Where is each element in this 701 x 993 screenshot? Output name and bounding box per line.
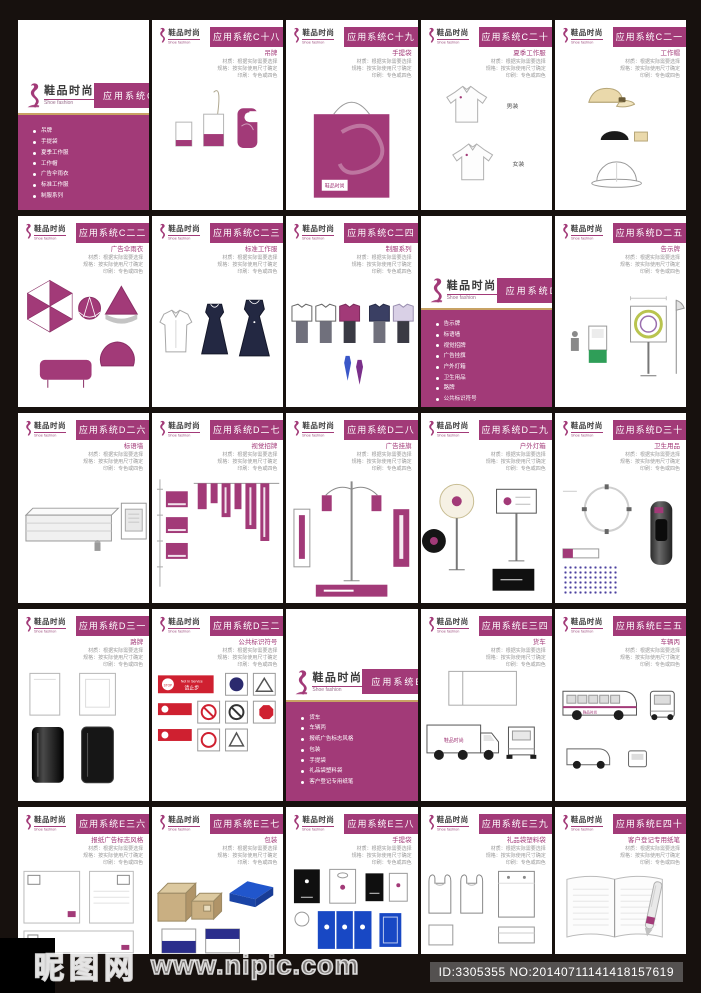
brand-logo: 鞋品时尚Shoe fashion xyxy=(421,420,479,438)
brand-name-cn: 鞋品时尚 xyxy=(437,420,469,433)
logo-woman-icon xyxy=(290,420,301,436)
brand-name-cn: 鞋品时尚 xyxy=(168,27,200,40)
divider-list-item: 客户登记专用纸笔 xyxy=(301,777,417,788)
uniform-figures-illustration xyxy=(286,276,417,406)
page-e40-notebook-pen: 鞋品时尚Shoe fashion 应用系统E四十 客户登记专用纸笔 材质：根据实… xyxy=(555,807,686,954)
brand-name-en: Shoe fashion xyxy=(168,827,195,831)
vi-manual-grid: 鞋品时尚Shoe fashion 应用系统C 吊牌 手提袋 夏季工作服 工作帽 … xyxy=(18,20,686,958)
page-title: 应用系统E四十 xyxy=(613,814,686,834)
brand-name-cn: 鞋品时尚 xyxy=(302,814,334,827)
stop-sign-text: STOP xyxy=(164,683,173,687)
divider-list-item: 手提袋 xyxy=(301,756,417,767)
page-subtitle: 货车 xyxy=(421,638,546,647)
divider-page-c: 鞋品时尚Shoe fashion 应用系统C 吊牌 手提袋 夏季工作服 工作帽 … xyxy=(18,20,149,210)
page-title: 应用系统E三五 xyxy=(613,616,686,636)
divider-list-item: 礼品袋塑料袋 xyxy=(301,766,417,777)
page-subtitle: 标语墙 xyxy=(18,442,143,451)
divider-list-item: 报纸广告标志风格 xyxy=(301,734,417,745)
carrier-bags-illustration xyxy=(286,867,417,954)
divider-item-list: 货车 车辆丙 报纸广告标志风格 包装 手提袋 礼品袋塑料袋 客户登记专用纸笔 xyxy=(286,702,417,801)
brand-name-cn: 鞋品时尚 xyxy=(302,420,334,433)
divider-white-area: 鞋品时尚Shoe fashion 应用系统D xyxy=(421,216,552,308)
brand-name-en: Shoe fashion xyxy=(437,40,464,44)
page-title: 应用系统D二七 xyxy=(210,420,283,440)
corner-black-block xyxy=(0,938,55,993)
logo-woman-icon xyxy=(292,669,310,695)
page-title: 应用系统D三十 xyxy=(613,420,686,440)
divider-list-item: 视觉招牌 xyxy=(436,341,552,352)
page-subtitle: 车辆丙 xyxy=(555,638,680,647)
truck-logo-text: 鞋品时尚 xyxy=(443,737,463,744)
brand-name-en: Shoe fashion xyxy=(571,827,598,831)
brand-name-en: Shoe fashion xyxy=(168,40,195,44)
brand-logo: 鞋品时尚Shoe fashion xyxy=(286,223,344,241)
page-title: 应用系统C二十 xyxy=(479,27,552,47)
brand-name-en: Shoe fashion xyxy=(571,40,598,44)
page-subtitle: 制服系列 xyxy=(286,245,411,254)
logo-woman-icon xyxy=(156,420,167,436)
page-d32-public-pictograms: 鞋品时尚Shoe fashion 应用系统D三二 公共标识符号 材质：根据实际需… xyxy=(152,609,283,801)
page-subtitle: 广告挂旗 xyxy=(286,442,411,451)
brand-logo: 鞋品时尚Shoe fashion xyxy=(286,814,344,832)
page-title: 应用系统C二四 xyxy=(344,223,417,243)
page-subtitle: 公共标识符号 xyxy=(152,638,277,647)
brand-name-en: Shoe fashion xyxy=(302,433,329,437)
page-c18-hangtags: 鞋品时尚Shoe fashion 应用系统C十八 吊牌 材质：根据实际需要选择规… xyxy=(152,20,283,210)
road-sign-pylons-illustration xyxy=(18,669,149,799)
brand-name-en: Shoe fashion xyxy=(44,100,94,106)
page-subtitle: 手提袋 xyxy=(286,836,411,845)
page-subtitle: 吊牌 xyxy=(152,49,277,58)
divider-title: 应用系统C xyxy=(94,83,149,108)
logo-woman-icon xyxy=(290,223,301,239)
page-title: 应用系统D二九 xyxy=(479,420,552,440)
brand-name-en: Shoe fashion xyxy=(34,629,61,633)
hanging-banners-illustration xyxy=(152,473,283,603)
not-in-service-text: Not In Service xyxy=(181,679,203,683)
page-e34-truck: 鞋品时尚Shoe fashion 应用系统E三四 货车 材质：根据实际需要选择规… xyxy=(421,609,552,801)
brand-logo: 鞋品时尚Shoe fashion xyxy=(152,814,210,832)
divider-list-item: 制服系列 xyxy=(33,191,149,202)
brand-name-cn: 鞋品时尚 xyxy=(34,616,66,629)
divider-list-item: 告示牌 xyxy=(436,319,552,330)
minibus-illustration: 鞋品时尚 xyxy=(555,669,686,799)
brand-name-cn: 鞋品时尚 xyxy=(437,27,469,40)
page-title: 应用系统E三九 xyxy=(479,814,552,834)
page-title: 应用系统E三六 xyxy=(76,814,149,834)
dot-pattern-swatch xyxy=(563,565,617,595)
page-c19-bag: 鞋品时尚Shoe fashion 应用系统C十九 手提袋 材质：根据实际需要选择… xyxy=(286,20,417,210)
divider-list-item: 标语墙 xyxy=(436,330,552,341)
page-subtitle: 视觉招牌 xyxy=(152,442,277,451)
logo-woman-icon xyxy=(559,616,570,632)
boxes-illustration xyxy=(152,867,283,954)
brand-logo: 鞋品时尚Shoe fashion xyxy=(555,420,613,438)
page-subtitle: 礼品袋塑料袋 xyxy=(421,836,546,845)
brand-name-en: Shoe fashion xyxy=(168,433,195,437)
brand-logo: 鞋品时尚Shoe fashion xyxy=(555,814,613,832)
page-title: 应用系统D二五 xyxy=(613,223,686,243)
brand-logo: 鞋品时尚Shoe fashion xyxy=(421,27,479,45)
page-title: 应用系统D二六 xyxy=(76,420,149,440)
brand-logo: 鞋品时尚Shoe fashion xyxy=(555,27,613,45)
divider-list-item: 广告挂旗 xyxy=(436,351,552,362)
page-subtitle: 路牌 xyxy=(18,638,143,647)
divider-list-item: 车辆丙 xyxy=(301,723,417,734)
page-e37-packaging: 鞋品时尚Shoe fashion 应用系统E三七 包装 材质：根据实际需要选择规… xyxy=(152,807,283,954)
logo-woman-icon xyxy=(425,814,436,830)
brand-name-cn: 鞋品时尚 xyxy=(312,669,362,687)
page-title: 应用系统E三七 xyxy=(210,814,283,834)
divider-list-item: 工作帽 xyxy=(33,159,149,170)
hangtags-illustration xyxy=(152,80,283,210)
divider-list-item: 路牌 xyxy=(436,383,552,394)
logo-woman-icon xyxy=(22,616,33,632)
page-subtitle: 报纸广告标志风格 xyxy=(18,836,143,845)
page-title: 应用系统E三四 xyxy=(479,616,552,636)
brand-logo: 鞋品时尚Shoe fashion xyxy=(152,223,210,241)
logo-woman-icon xyxy=(156,814,167,830)
bag-logo-text: 鞋品时尚 xyxy=(325,183,345,190)
page-title: 应用系统C二二 xyxy=(76,223,149,243)
brand-name-cn: 鞋品时尚 xyxy=(571,616,603,629)
page-title: 应用系统D三二 xyxy=(210,616,283,636)
page-e36-newspaper-ads: 鞋品时尚Shoe fashion 应用系统E三六 报纸广告标志风格 材质：根据实… xyxy=(18,807,149,954)
brand-name-cn: 鞋品时尚 xyxy=(168,420,200,433)
brand-name-en: Shoe fashion xyxy=(34,827,61,831)
brand-name-en: Shoe fashion xyxy=(34,236,61,240)
divider-list-item: 广告伞雨衣 xyxy=(33,169,149,180)
brand-logo: 鞋品时尚Shoe fashion xyxy=(152,27,210,45)
logo-woman-icon xyxy=(156,223,167,239)
page-subtitle: 客户登记专用纸笔 xyxy=(555,836,680,845)
page-d30-hygiene-products: 鞋品时尚Shoe fashion 应用系统D三十 卫生用品 材质：根据实际需要选… xyxy=(555,413,686,603)
logo-woman-icon xyxy=(290,814,301,830)
logo-woman-icon xyxy=(156,616,167,632)
page-e38-carrier-bags: 鞋品时尚Shoe fashion 应用系统E三八 手提袋 材质：根据实际需要选择… xyxy=(286,807,417,954)
notice-board-illustration xyxy=(555,276,686,406)
brand-name-cn: 鞋品时尚 xyxy=(168,616,200,629)
shopping-bag-illustration: 鞋品时尚 xyxy=(286,80,417,210)
caps-illustration xyxy=(555,80,686,210)
page-e39-plastic-bags: 鞋品时尚Shoe fashion 应用系统E三九 礼品袋塑料袋 材质：根据实际需… xyxy=(421,807,552,954)
divider-title: 应用系统E xyxy=(362,669,417,694)
keep-out-text: 请止步 xyxy=(185,684,200,691)
brand-name-cn: 鞋品时尚 xyxy=(571,27,603,40)
divider-list-item: 包装 xyxy=(301,745,417,756)
page-title: 应用系统C十八 xyxy=(210,27,283,47)
womenswear-label: 女装 xyxy=(512,160,524,168)
page-d25-notice-board: 鞋品时尚Shoe fashion 应用系统D二五 告示牌 材质：根据实际需要选择… xyxy=(555,216,686,407)
page-c21-caps: 鞋品时尚Shoe fashion 应用系统C二一 工作帽 材质：根据实际需要选择… xyxy=(555,20,686,210)
brand-name-en: Shoe fashion xyxy=(168,236,195,240)
brand-name-en: Shoe fashion xyxy=(571,236,598,240)
divider-list-item: 吊牌 xyxy=(33,126,149,137)
brand-logo: 鞋品时尚Shoe fashion xyxy=(555,223,613,241)
divider-title: 应用系统D xyxy=(497,278,552,303)
page-subtitle: 工作帽 xyxy=(555,49,680,58)
brand-name-en: Shoe fashion xyxy=(571,629,598,633)
page-title: 应用系统C十九 xyxy=(344,27,417,47)
page-d29-outdoor-lightboxes: 鞋品时尚Shoe fashion 应用系统D二九 户外灯箱 材质：根据实际需要选… xyxy=(421,413,552,603)
brand-name-cn: 鞋品时尚 xyxy=(34,223,66,236)
brand-logo: 鞋品时尚Shoe fashion xyxy=(152,616,210,634)
logo-woman-icon xyxy=(22,223,33,239)
page-d31-road-signs: 鞋品时尚Shoe fashion 应用系统D三一 路牌 材质：根据实际需要选择规… xyxy=(18,609,149,801)
brand-logo: 鞋品时尚Shoe fashion xyxy=(18,814,76,832)
logo-woman-icon xyxy=(559,420,570,436)
logo-woman-icon xyxy=(559,814,570,830)
logo-woman-icon xyxy=(425,420,436,436)
logo-woman-icon xyxy=(22,420,33,436)
page-c24-uniform-series: 鞋品时尚Shoe fashion 应用系统C二四 制服系列 材质：根据实际需要选… xyxy=(286,216,417,407)
brand-name-en: Shoe fashion xyxy=(302,827,329,831)
logo-woman-icon xyxy=(559,223,570,239)
brand-name-en: Shoe fashion xyxy=(302,40,329,44)
page-subtitle: 手提袋 xyxy=(286,49,411,58)
brand-name-en: Shoe fashion xyxy=(312,687,362,693)
brand-logo: 鞋品时尚Shoe fashion xyxy=(286,420,344,438)
brand-logo: 鞋品时尚Shoe fashion xyxy=(421,814,479,832)
divider-item-list: 告示牌 标语墙 视觉招牌 广告挂旗 户外灯箱 卫生用品 路牌 公共标识符号 xyxy=(421,310,552,407)
page-title: 应用系统C二三 xyxy=(210,223,283,243)
slogan-wall-illustration xyxy=(18,473,149,603)
page-title: 应用系统D三一 xyxy=(76,616,149,636)
page-subtitle: 告示牌 xyxy=(555,245,680,254)
brand-name-cn: 鞋品时尚 xyxy=(571,420,603,433)
page-title: 应用系统D二八 xyxy=(344,420,417,440)
logo-woman-icon xyxy=(290,27,301,43)
menswear-label: 男装 xyxy=(506,102,518,110)
page-subtitle: 广告伞雨衣 xyxy=(18,245,143,254)
page-subtitle: 户外灯箱 xyxy=(421,442,546,451)
logo-woman-icon xyxy=(156,27,167,43)
page-c20-summer-uniform: 鞋品时尚Shoe fashion 应用系统C二十 夏季工作服 材质：根据实际需要… xyxy=(421,20,552,210)
divider-list-item: 手提袋 xyxy=(33,137,149,148)
polo-shirts-illustration: 男装 女装 xyxy=(421,80,552,210)
umbrella-raincoat-illustration xyxy=(18,276,149,406)
page-title: 应用系统E三八 xyxy=(344,814,417,834)
page-title: 应用系统C二一 xyxy=(613,27,686,47)
divider-list-item: 夏季工作服 xyxy=(33,148,149,159)
brand-name-cn: 鞋品时尚 xyxy=(437,814,469,827)
brand-name-cn: 鞋品时尚 xyxy=(302,223,334,236)
brand-logo: 鞋品时尚Shoe fashion xyxy=(421,277,497,303)
brand-name-en: Shoe fashion xyxy=(302,236,329,240)
brand-logo: 鞋品时尚Shoe fashion xyxy=(286,669,362,695)
divider-white-area: 鞋品时尚Shoe fashion 应用系统E xyxy=(286,609,417,700)
plastic-bags-illustration xyxy=(421,867,552,954)
brand-name-cn: 鞋品时尚 xyxy=(168,814,200,827)
logo-woman-icon xyxy=(425,27,436,43)
page-e35-vehicles: 鞋品时尚Shoe fashion 应用系统E三五 车辆丙 材质：根据实际需要选择… xyxy=(555,609,686,801)
brand-logo: 鞋品时尚Shoe fashion xyxy=(18,223,76,241)
brand-name-en: Shoe fashion xyxy=(447,295,497,301)
watermark-id-bar: ID:3305355 NO:20140711141418157619 xyxy=(430,962,683,982)
logo-woman-icon xyxy=(425,616,436,632)
page-c23-standard-uniform: 鞋品时尚Shoe fashion 应用系统C二三 标准工作服 材质：根据实际需要… xyxy=(152,216,283,407)
divider-page-e: 鞋品时尚Shoe fashion 应用系统E 货车 车辆丙 报纸广告标志风格 包… xyxy=(286,609,417,801)
pictogram-grid-illustration: STOP Not In Service 请止步 xyxy=(152,669,283,799)
brand-name-cn: 鞋品时尚 xyxy=(437,616,469,629)
divider-list-item: 标准工作服 xyxy=(33,180,149,191)
bus-logo-text: 鞋品时尚 xyxy=(583,710,598,715)
brand-logo: 鞋品时尚Shoe fashion xyxy=(421,616,479,634)
page-d27-visual-signboards: 鞋品时尚Shoe fashion 应用系统D二七 视觉招牌 材质：根据实际需要选… xyxy=(152,413,283,603)
brand-name-cn: 鞋品时尚 xyxy=(447,277,497,295)
brand-logo: 鞋品时尚Shoe fashion xyxy=(286,27,344,45)
page-d28-street-flags: 鞋品时尚Shoe fashion 应用系统D二八 广告挂旗 材质：根据实际需要选… xyxy=(286,413,417,603)
page-c22-umbrellas: 鞋品时尚Shoe fashion 应用系统C二二 广告伞雨衣 材质：根据实际需要… xyxy=(18,216,149,407)
brand-name-cn: 鞋品时尚 xyxy=(44,82,94,100)
notebook-pen-illustration xyxy=(555,867,686,954)
divider-white-area: 鞋品时尚Shoe fashion 应用系统C xyxy=(18,20,149,113)
workwear-illustration xyxy=(152,276,283,406)
logo-woman-icon xyxy=(22,814,33,830)
lightbox-illustration xyxy=(421,473,552,603)
brand-logo: 鞋品时尚Shoe fashion xyxy=(18,616,76,634)
divider-list-item: 货车 xyxy=(301,713,417,724)
logo-woman-icon xyxy=(24,82,42,108)
brand-logo: 鞋品时尚Shoe fashion xyxy=(18,420,76,438)
divider-page-d: 鞋品时尚Shoe fashion 应用系统D 告示牌 标语墙 视觉招牌 广告挂旗… xyxy=(421,216,552,407)
brand-logo: 鞋品时尚Shoe fashion xyxy=(18,82,94,108)
brand-name-en: Shoe fashion xyxy=(168,629,195,633)
brand-name-en: Shoe fashion xyxy=(437,629,464,633)
brand-name-en: Shoe fashion xyxy=(34,433,61,437)
lamp-post-flags-illustration xyxy=(286,473,417,603)
page-subtitle: 夏季工作服 xyxy=(421,49,546,58)
page-subtitle: 包装 xyxy=(152,836,277,845)
brand-name-cn: 鞋品时尚 xyxy=(34,420,66,433)
page-subtitle: 标准工作服 xyxy=(152,245,277,254)
brand-name-en: Shoe fashion xyxy=(437,827,464,831)
brand-name-en: Shoe fashion xyxy=(437,433,464,437)
brand-name-cn: 鞋品时尚 xyxy=(571,223,603,236)
page-d26-slogan-wall: 鞋品时尚Shoe fashion 应用系统D二六 标语墙 材质：根据实际需要选择… xyxy=(18,413,149,603)
brand-name-cn: 鞋品时尚 xyxy=(302,27,334,40)
divider-list-item: 卫生用品 xyxy=(436,373,552,384)
logo-woman-icon xyxy=(559,27,570,43)
divider-list-item: 公共标识符号 xyxy=(436,394,552,405)
divider-item-list: 吊牌 手提袋 夏季工作服 工作帽 广告伞雨衣 标准工作服 制服系列 xyxy=(18,115,149,210)
brand-name-cn: 鞋品时尚 xyxy=(168,223,200,236)
logo-woman-icon xyxy=(427,277,445,303)
brand-name-cn: 鞋品时尚 xyxy=(571,814,603,827)
brand-logo: 鞋品时尚Shoe fashion xyxy=(555,616,613,634)
brand-logo: 鞋品时尚Shoe fashion xyxy=(152,420,210,438)
truck-illustration: 鞋品时尚 xyxy=(421,669,552,799)
brand-name-en: Shoe fashion xyxy=(571,433,598,437)
page-subtitle: 卫生用品 xyxy=(555,442,680,451)
divider-list-item: 户外灯箱 xyxy=(436,362,552,373)
brand-name-cn: 鞋品时尚 xyxy=(34,814,66,827)
